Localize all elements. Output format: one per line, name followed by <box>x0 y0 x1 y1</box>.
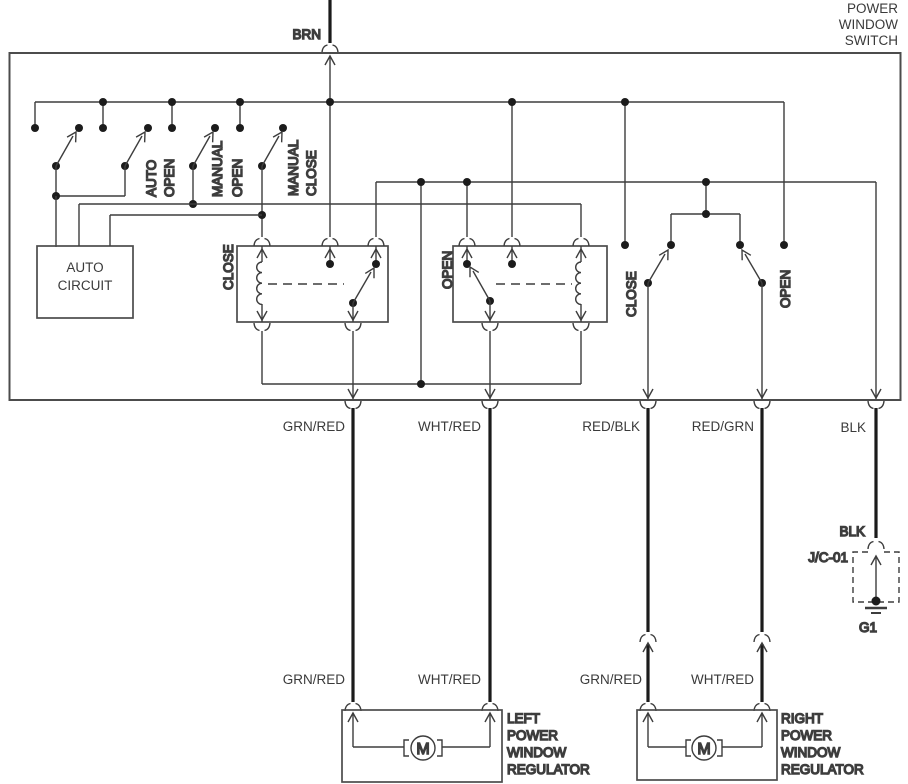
connector-arc-icon <box>254 239 270 247</box>
inline-connector-icon <box>754 635 770 643</box>
motor-letter: M <box>416 741 429 758</box>
connector-arc-icon <box>482 401 498 409</box>
connector-arc-icon <box>322 239 338 247</box>
switch-label-auto-open: AUTO <box>144 160 159 197</box>
switch-manual-open[interactable]: MANUAL OPEN <box>168 124 245 208</box>
connector-arc-icon <box>754 401 770 409</box>
connector-arc-icon <box>573 239 589 247</box>
connector-arc-icon <box>254 323 270 331</box>
open-relay-label: OPEN <box>440 251 455 289</box>
component-title-line: POWER <box>847 1 898 16</box>
switch-label-manual-close: CLOSE <box>304 150 319 196</box>
right-regulator-name: REGULATOR <box>781 762 864 777</box>
left-regulator-name: POWER <box>507 728 558 743</box>
switch-auto-open[interactable]: AUTO OPEN <box>52 124 177 247</box>
close-relay-coil <box>257 262 262 304</box>
right-window-switch[interactable]: CLOSE OPEN <box>621 210 793 399</box>
component-outline <box>10 53 901 400</box>
wire-label-wht-red-lower: WHT/RED <box>691 672 754 687</box>
wire-label-brn: BRN <box>292 27 321 42</box>
connector-arc-icon <box>482 323 498 331</box>
switch-label-manual-close: MANUAL <box>286 139 301 196</box>
left-regulator-name: WINDOW <box>507 745 566 760</box>
connector-arc-icon <box>368 239 384 247</box>
close-relay-label: CLOSE <box>221 244 236 290</box>
brn-feed-wire: BRN <box>292 0 338 53</box>
power-window-switch-box: POWER WINDOW SWITCH <box>10 1 901 400</box>
open-relay: OPEN <box>440 239 607 400</box>
left-regulator-name: LEFT <box>507 711 540 726</box>
junction-label: J/C-01 <box>808 550 848 565</box>
right-regulator: M RIGHT POWER WINDOW REGULATOR <box>637 710 864 780</box>
wiring-diagram: BRN POWER WINDOW SWITCH AUTO <box>0 0 908 784</box>
connector-arc-icon <box>345 401 361 409</box>
right-switch-open-label: OPEN <box>778 270 793 308</box>
wire-label-grn-red-lower: GRN/RED <box>283 672 346 687</box>
switch-auto-close[interactable] <box>31 124 83 196</box>
component-title-line: WINDOW <box>839 17 898 32</box>
connector-arc-icon <box>640 401 656 409</box>
connector-arc-icon <box>868 542 884 550</box>
switch-label-manual-open: MANUAL <box>210 140 225 197</box>
wire-label-red-grn: RED/GRN <box>692 419 754 434</box>
right-regulator-name: POWER <box>781 728 832 743</box>
open-relay-coil <box>576 262 581 304</box>
wire-label-blk-ground: BLK <box>839 524 865 539</box>
close-relay: CLOSE <box>221 239 388 400</box>
left-regulator-name: REGULATOR <box>507 762 590 777</box>
main-box-exit-connectors <box>345 401 884 409</box>
auto-circuit-box: AUTO CIRCUIT <box>37 246 133 318</box>
wire-label-grn-red-lower: GRN/RED <box>580 672 643 687</box>
wire-label-wht-red: WHT/RED <box>418 419 481 434</box>
connector-arc-icon <box>345 323 361 331</box>
right-regulator-name: RIGHT <box>781 711 823 726</box>
motor-letter: M <box>697 741 710 758</box>
switch-arrow-icon <box>738 248 751 261</box>
switch-label-manual-open: OPEN <box>230 159 245 197</box>
inline-connector-icon <box>640 635 656 643</box>
harness-wires: GRN/RED WHT/RED RED/BLK RED/GRN BLK GRN/… <box>283 408 866 711</box>
wire-label-blk: BLK <box>840 420 866 435</box>
switch-arrow-icon <box>659 248 672 261</box>
interconnect-wiring <box>79 178 881 399</box>
wiring-diagram-canvas: BRN POWER WINDOW SWITCH AUTO <box>0 0 908 784</box>
connector-arc-icon <box>322 45 338 53</box>
wire-label-wht-red-lower: WHT/RED <box>418 672 481 687</box>
wire-label-grn-red: GRN/RED <box>283 419 346 434</box>
left-regulator: M LEFT POWER WINDOW REGULATOR <box>342 710 590 782</box>
right-switch-close-label: CLOSE <box>624 271 639 317</box>
switch-manual-close[interactable]: MANUAL CLOSE <box>236 124 319 237</box>
right-regulator-name: WINDOW <box>781 745 840 760</box>
connector-arc-icon <box>573 323 589 331</box>
switch-label-auto-open: OPEN <box>162 159 177 197</box>
ground-point-label: G1 <box>859 620 877 635</box>
ground-terminal-dot <box>872 597 881 606</box>
ground-path: BLK J/C-01 G1 <box>808 408 899 635</box>
connector-arc-icon <box>504 239 520 247</box>
auto-circuit-label: AUTO <box>66 260 103 275</box>
component-title-line: SWITCH <box>845 33 898 48</box>
wire-label-red-blk: RED/BLK <box>582 419 640 434</box>
connector-arc-icon <box>459 239 475 247</box>
connector-arc-icon <box>868 401 884 409</box>
auto-circuit-label: CIRCUIT <box>58 278 113 293</box>
